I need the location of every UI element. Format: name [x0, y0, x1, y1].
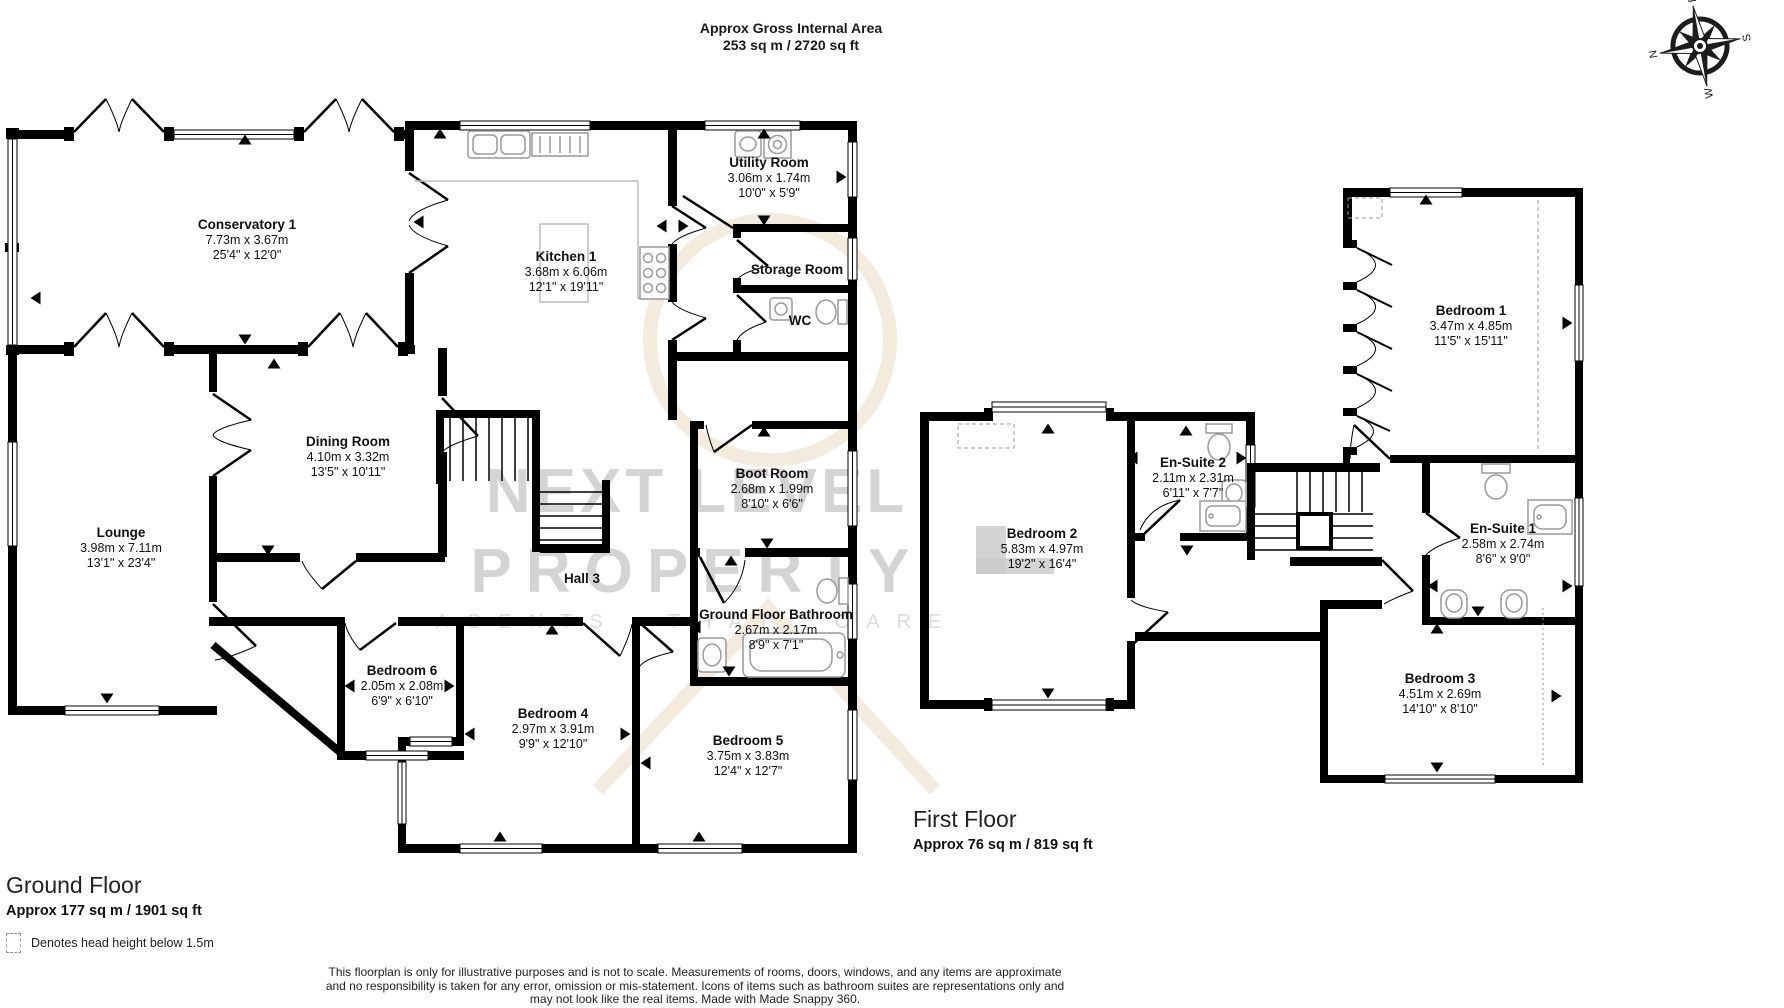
floorplan-page: NEXT LEVEL PROPERTY AGENTS THAT CARE	[0, 0, 1784, 1008]
lounge-windows	[8, 442, 159, 715]
compass-n-label: N	[1647, 49, 1660, 59]
room-label-ensuite2: En-Suite 2 2.11m x 2.31m 6'11" x 7'7"	[1152, 455, 1234, 502]
gross-area-line2: 253 sq m / 2720 sq ft	[700, 37, 882, 54]
ground-floor-area: Approx 177 sq m / 1901 sq ft	[6, 903, 202, 919]
room-label-lounge: Lounge 3.98m x 7.11m 13'1" x 23'4"	[80, 525, 162, 572]
disclaimer-line1: This floorplan is only for illustrative …	[95, 966, 1295, 980]
room-label-bedroom6: Bedroom 6 2.05m x 2.08m 6'9" x 6'10"	[361, 663, 444, 710]
compass-icon: N E S W	[1639, 0, 1763, 108]
disclaimer: This floorplan is only for illustrative …	[95, 966, 1295, 1007]
disclaimer-line2: and no responsibility is taken for any e…	[95, 980, 1295, 994]
ensuite1-door	[1426, 513, 1460, 555]
kitchen-sink-icon	[468, 131, 588, 158]
room-label-ensuite1: En-Suite 1 2.58m x 2.74m 8'6" x 9'0"	[1462, 521, 1545, 568]
room-label-dining: Dining Room 4.10m x 3.32m 13'5" x 10'11"	[306, 434, 390, 481]
compass-e-label: E	[1686, 0, 1699, 3]
first-floor-title: First Floor	[913, 806, 1093, 833]
room-label-bedroom3: Bedroom 3 4.51m x 2.69m 14'10" x 8'10"	[1399, 671, 1482, 718]
room-label-conservatory: Conservatory 1 7.73m x 3.67m 25'4" x 12'…	[198, 217, 296, 264]
room-label-boot-room: Boot Room 2.68m x 1.99m 8'10" x 6'6"	[731, 466, 814, 513]
disclaimer-line3: may not look like the real items. Made w…	[95, 993, 1295, 1007]
room-label-storage: Storage Room	[751, 262, 843, 278]
room-label-utility: Utility Room 3.06m x 1.74m 10'0" x 5'9"	[728, 155, 811, 202]
room-label-ground-floor-bathroom: Ground Floor Bathroom 2.67m x 2.17m 8'9"…	[699, 607, 853, 654]
room-label-bedroom2: Bedroom 2 5.83m x 4.97m 19'2" x 16'4"	[1001, 526, 1084, 573]
bedroom1-wardrobe-doors	[1357, 248, 1392, 447]
head-height-legend: Denotes head height below 1.5m	[6, 933, 214, 953]
room-label-bedroom5: Bedroom 5 3.75m x 3.83m 12'4" x 12'7"	[707, 733, 790, 780]
first-floor-area: Approx 76 sq m / 819 sq ft	[913, 837, 1093, 853]
first-floor-heading: First Floor Approx 76 sq m / 819 sq ft	[913, 806, 1093, 853]
bedroom3-window	[1385, 775, 1495, 783]
room-label-bedroom1: Bedroom 1 3.47m x 4.85m 11'5" x 15'11"	[1430, 303, 1513, 350]
room-label-kitchen: Kitchen 1 3.68m x 6.06m 12'1" x 19'11"	[525, 249, 608, 296]
ensuite2-door	[1140, 500, 1180, 535]
compass-w-label: W	[1702, 86, 1716, 99]
compass-s-label: S	[1741, 33, 1754, 42]
ensuite1-window	[1575, 498, 1583, 586]
stove-icon	[640, 247, 669, 299]
gross-internal-area-heading: Approx Gross Internal Area 253 sq m / 27…	[700, 20, 882, 54]
ground-floor-title: Ground Floor	[6, 872, 202, 899]
floorplan-drawing: NEXT LEVEL PROPERTY AGENTS THAT CARE	[0, 0, 1784, 1008]
gross-area-line1: Approx Gross Internal Area	[700, 20, 882, 37]
first-floor-plan	[920, 188, 1583, 783]
room-label-hall: Hall 3	[564, 571, 600, 587]
head-height-legend-icon	[6, 933, 21, 953]
head-height-legend-text: Denotes head height below 1.5m	[31, 936, 214, 950]
ground-floor-heading: Ground Floor Approx 177 sq m / 1901 sq f…	[6, 872, 202, 919]
room-label-bedroom4: Bedroom 4 2.97m x 3.91m 9'9" x 12'10"	[512, 706, 595, 753]
exterior-diagonal-wall	[213, 645, 341, 753]
staircase-first	[1247, 463, 1413, 641]
room-label-wc: WC	[789, 313, 812, 329]
